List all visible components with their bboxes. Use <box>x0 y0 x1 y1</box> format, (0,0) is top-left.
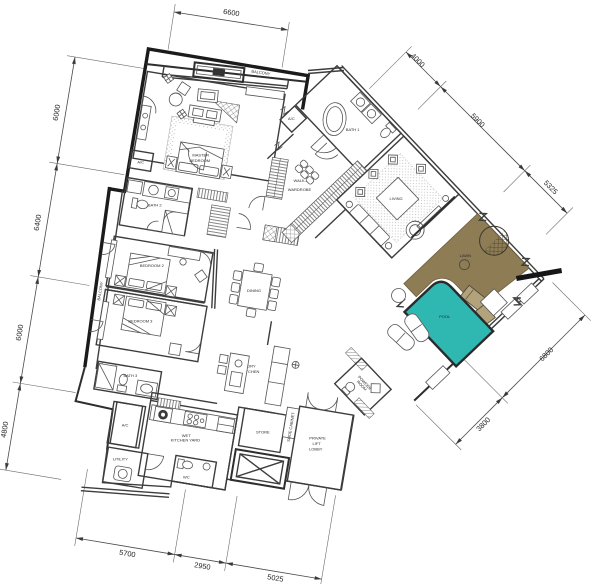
svg-text:WC: WC <box>183 474 190 479</box>
svg-text:DRY: DRY <box>247 364 256 369</box>
svg-text:LOBBY: LOBBY <box>309 446 323 451</box>
svg-text:A/C: A/C <box>137 160 144 165</box>
svg-text:STORE: STORE <box>256 429 270 434</box>
svg-text:A/C: A/C <box>122 423 129 428</box>
svg-text:BEDROOM: BEDROOM <box>189 158 210 163</box>
svg-text:KITCHEN YARD: KITCHEN YARD <box>171 438 201 443</box>
svg-text:LIFT: LIFT <box>313 441 322 446</box>
svg-text:BATH 2: BATH 2 <box>148 202 162 207</box>
svg-text:BEDROOM 3: BEDROOM 3 <box>128 319 153 324</box>
svg-text:WARDROBE: WARDROBE <box>288 187 312 192</box>
svg-text:PRIVATE: PRIVATE <box>309 436 326 441</box>
svg-text:BATH 1: BATH 1 <box>346 127 360 132</box>
svg-text:DINING: DINING <box>247 288 261 293</box>
svg-text:LIVING: LIVING <box>390 196 403 201</box>
svg-text:A/C: A/C <box>288 116 295 121</box>
svg-text:POOL: POOL <box>439 314 451 319</box>
svg-text:BATH 3: BATH 3 <box>123 373 137 378</box>
svg-text:LAWN: LAWN <box>460 253 472 258</box>
svg-text:BEDROOM 2: BEDROOM 2 <box>140 263 165 268</box>
svg-text:UTILITY: UTILITY <box>113 456 128 461</box>
